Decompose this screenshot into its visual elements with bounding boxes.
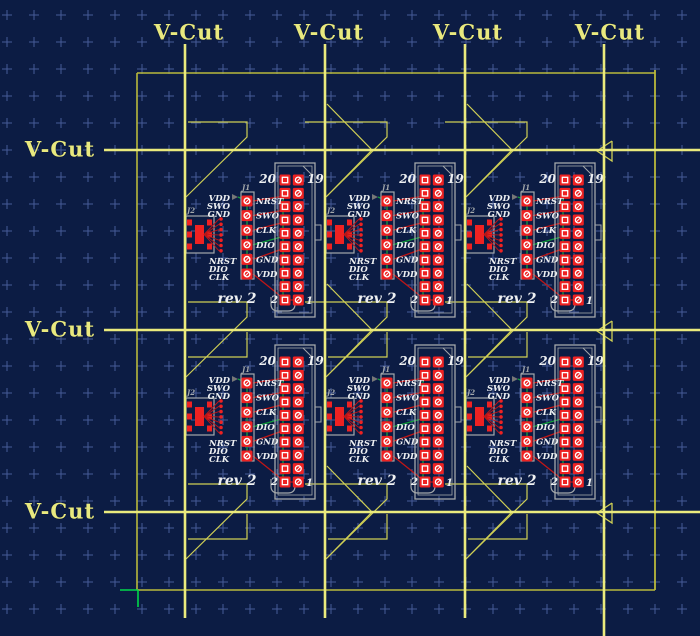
connector-outline <box>415 345 455 499</box>
pin-number-1: 1 <box>306 296 313 307</box>
through-hole-pad[interactable] <box>420 254 431 265</box>
pin-number-2: 2 <box>550 477 558 488</box>
net-label: GND <box>348 210 371 220</box>
pin-number-20: 20 <box>258 354 276 368</box>
via[interactable] <box>359 249 363 253</box>
via[interactable] <box>499 420 503 424</box>
smd-pad[interactable] <box>207 220 212 226</box>
pin-name-label: CLK <box>256 408 277 418</box>
via[interactable] <box>499 431 503 435</box>
through-hole-pad[interactable] <box>280 294 291 305</box>
through-hole-pad[interactable] <box>560 241 571 252</box>
pin-number-19: 19 <box>447 172 464 186</box>
vcut-label-top-2: V-Cut <box>294 20 364 45</box>
pin-name-label: VDD <box>396 452 418 462</box>
via[interactable] <box>219 249 223 253</box>
copper-pour <box>195 407 204 426</box>
copper-pour <box>475 407 484 426</box>
net-label: CLK <box>209 455 230 465</box>
smd-pad[interactable] <box>327 232 332 238</box>
smd-pad[interactable] <box>487 244 492 250</box>
connector-key-notch <box>595 225 601 240</box>
net-arrow-icon <box>232 376 238 382</box>
vcut-label-left-3: V-Cut <box>25 499 95 524</box>
smd-pad[interactable] <box>347 244 352 250</box>
pin-name-label: VDD <box>396 270 418 280</box>
pin-number-19: 19 <box>307 354 324 368</box>
through-hole-pad[interactable] <box>560 214 571 225</box>
through-hole-pad[interactable] <box>560 396 571 407</box>
pin-number-20: 20 <box>538 172 556 186</box>
vcut-label-top-1: V-Cut <box>154 20 224 45</box>
via[interactable] <box>499 238 503 242</box>
pin-number-19: 19 <box>587 354 604 368</box>
via[interactable] <box>359 233 363 237</box>
via[interactable] <box>359 405 363 409</box>
j2-refdes: J2 <box>185 206 195 215</box>
pin-number-2: 2 <box>270 295 278 306</box>
rev-label: rev 2 <box>357 473 396 489</box>
pin-name-label: VDD <box>256 270 278 280</box>
pin-name-label: SWO <box>536 212 560 222</box>
pin-number-2: 2 <box>410 477 418 488</box>
vcut-label-top-3: V-Cut <box>433 20 503 45</box>
smd-pad[interactable] <box>347 426 352 432</box>
through-hole-pad[interactable] <box>280 214 291 225</box>
via[interactable] <box>499 249 503 253</box>
rev-label: rev 2 <box>217 291 256 307</box>
net-label: CLK <box>349 273 370 283</box>
through-hole-pad[interactable] <box>280 254 291 265</box>
vcut-label-left-2: V-Cut <box>25 317 95 342</box>
smd-pad[interactable] <box>207 426 212 432</box>
through-hole-pad[interactable] <box>420 410 431 421</box>
smd-pad[interactable] <box>327 414 332 420</box>
through-hole-pad[interactable] <box>280 268 291 279</box>
smd-pad[interactable] <box>187 232 192 238</box>
pin-number-1: 1 <box>586 478 593 489</box>
via[interactable] <box>499 244 503 248</box>
pin-name-label: NRST <box>535 379 564 389</box>
pin-name-label: SWO <box>396 394 420 404</box>
net-label: CLK <box>489 273 510 283</box>
through-hole-pad[interactable] <box>420 463 431 474</box>
net-label: CLK <box>349 455 370 465</box>
through-hole-pad[interactable] <box>560 410 571 421</box>
via[interactable] <box>219 405 223 409</box>
net-label: GND <box>488 210 511 220</box>
pin-number-2: 2 <box>550 295 558 306</box>
pin-name-label: CLK <box>396 226 417 236</box>
smd-pad[interactable] <box>187 426 192 432</box>
copper-pour <box>335 225 344 244</box>
through-hole-pad[interactable] <box>420 241 431 252</box>
connector-key-notch <box>455 407 461 422</box>
pin-number-1: 1 <box>586 296 593 307</box>
through-hole-pad[interactable] <box>280 476 291 487</box>
via[interactable] <box>359 426 363 430</box>
smd-pad[interactable] <box>207 402 212 408</box>
pcb-module[interactable]: 201921rev 2J1J2NRSTSWOCLKDIOGNDVDDVDDSWO… <box>465 163 604 317</box>
via[interactable] <box>219 223 223 227</box>
pin-name-label: GND <box>536 255 559 265</box>
through-hole-pad[interactable] <box>560 423 571 434</box>
pin-name-label: NRST <box>535 197 564 207</box>
j1-refdes: J1 <box>240 183 250 192</box>
j2-refdes: J2 <box>185 388 195 397</box>
through-hole-pad[interactable] <box>560 436 571 447</box>
via[interactable] <box>219 244 223 248</box>
via[interactable] <box>499 415 503 419</box>
smd-pad[interactable] <box>327 244 332 250</box>
pcb-module[interactable]: 201921rev 2J1J2NRSTSWOCLKDIOGNDVDDVDDSWO… <box>185 163 324 317</box>
pin-name-label: SWO <box>396 212 420 222</box>
j1-refdes: J1 <box>240 365 250 374</box>
j2-refdes: J2 <box>465 206 475 215</box>
through-hole-pad[interactable] <box>560 254 571 265</box>
pin-name-label: VDD <box>256 452 278 462</box>
via[interactable] <box>359 228 363 232</box>
via[interactable] <box>359 223 363 227</box>
through-hole-pad[interactable] <box>280 423 291 434</box>
net-arrow-icon <box>512 376 518 382</box>
via[interactable] <box>219 238 223 242</box>
through-hole-pad[interactable] <box>420 214 431 225</box>
via[interactable] <box>219 233 223 237</box>
net-arrow-icon <box>512 194 518 200</box>
smd-pad[interactable] <box>207 244 212 250</box>
pcb-canvas[interactable]: 201921rev 2J1J2NRSTSWOCLKDIOGNDVDDVDDSWO… <box>0 0 700 636</box>
pcb-module[interactable]: 201921rev 2J1J2NRSTSWOCLKDIOGNDVDDVDDSWO… <box>185 345 324 499</box>
pcb-module[interactable]: 201921rev 2J1J2NRSTSWOCLKDIOGNDVDDVDDSWO… <box>325 345 464 499</box>
pin-number-1: 1 <box>306 478 313 489</box>
pin-name-label: SWO <box>256 394 280 404</box>
rev-label: rev 2 <box>497 473 536 489</box>
pin-name-label: GND <box>396 437 419 447</box>
via[interactable] <box>219 415 223 419</box>
pin-name-label: CLK <box>536 226 557 236</box>
via[interactable] <box>219 410 223 414</box>
via[interactable] <box>359 238 363 242</box>
through-hole-pad[interactable] <box>280 463 291 474</box>
via[interactable] <box>359 415 363 419</box>
j2-refdes: J2 <box>325 206 335 215</box>
connector-outline <box>555 345 595 499</box>
through-hole-pad[interactable] <box>420 228 431 239</box>
board-edge-notch[interactable] <box>188 332 247 357</box>
through-hole-pad[interactable] <box>280 175 291 186</box>
via[interactable] <box>499 223 503 227</box>
pin-name-label: GND <box>256 255 279 265</box>
rev-label: rev 2 <box>497 291 536 307</box>
through-hole-pad[interactable] <box>280 450 291 461</box>
pin-name-label: GND <box>536 437 559 447</box>
pin-name-label: DIO <box>535 241 555 251</box>
via[interactable] <box>359 420 363 424</box>
net-arrow-icon <box>372 376 378 382</box>
rev-label: rev 2 <box>217 473 256 489</box>
smd-pad[interactable] <box>487 426 492 432</box>
via[interactable] <box>219 228 223 232</box>
pin-name-label: NRST <box>395 197 424 207</box>
via[interactable] <box>359 431 363 435</box>
smd-pad[interactable] <box>327 426 332 432</box>
origin-marker <box>120 590 138 607</box>
pin-number-1: 1 <box>446 296 453 307</box>
via[interactable] <box>499 426 503 430</box>
vcut-label-left-1: V-Cut <box>25 137 95 162</box>
connector-outline <box>275 345 315 499</box>
pin-name-label: CLK <box>536 408 557 418</box>
pin-number-19: 19 <box>447 354 464 368</box>
through-hole-pad[interactable] <box>280 228 291 239</box>
through-hole-pad[interactable] <box>420 268 431 279</box>
net-label: CLK <box>489 455 510 465</box>
smd-pad[interactable] <box>187 414 192 420</box>
through-hole-pad[interactable] <box>420 476 431 487</box>
board-edge-flag[interactable] <box>186 484 247 559</box>
connector-outline <box>275 163 315 317</box>
through-hole-pad[interactable] <box>420 294 431 305</box>
smd-pad[interactable] <box>467 426 472 432</box>
smd-pad[interactable] <box>347 220 352 226</box>
pin-name-label: SWO <box>536 394 560 404</box>
net-label: CLK <box>209 273 230 283</box>
via[interactable] <box>499 410 503 414</box>
smd-pad[interactable] <box>187 244 192 250</box>
via[interactable] <box>219 426 223 430</box>
pin-number-2: 2 <box>410 295 418 306</box>
smd-pad[interactable] <box>187 220 192 226</box>
pin-name-label: DIO <box>255 423 275 433</box>
rev-label: rev 2 <box>357 291 396 307</box>
board-edge-flag[interactable] <box>186 122 247 197</box>
through-hole-pad[interactable] <box>420 396 431 407</box>
board-edge-notch[interactable] <box>188 514 247 539</box>
pin-number-19: 19 <box>587 172 604 186</box>
via[interactable] <box>219 420 223 424</box>
pin-name-label: GND <box>396 255 419 265</box>
via[interactable] <box>359 410 363 414</box>
pin-name-label: VDD <box>536 452 558 462</box>
through-hole-pad[interactable] <box>280 396 291 407</box>
j2-refdes: J2 <box>465 388 475 397</box>
smd-pad[interactable] <box>467 220 472 226</box>
copper-pour <box>475 225 484 244</box>
through-hole-pad[interactable] <box>560 228 571 239</box>
through-hole-pad[interactable] <box>420 436 431 447</box>
pin-name-label: CLK <box>396 408 417 418</box>
j1-refdes: J1 <box>380 183 390 192</box>
through-hole-pad[interactable] <box>420 423 431 434</box>
through-hole-pad[interactable] <box>420 357 431 368</box>
smd-pad[interactable] <box>487 220 492 226</box>
net-arrow-icon <box>372 194 378 200</box>
through-hole-pad[interactable] <box>420 175 431 186</box>
through-hole-pad[interactable] <box>560 281 571 292</box>
via[interactable] <box>359 244 363 248</box>
through-hole-pad[interactable] <box>560 294 571 305</box>
through-hole-pad[interactable] <box>420 450 431 461</box>
through-hole-pad[interactable] <box>280 436 291 447</box>
connector-key-notch <box>315 407 321 422</box>
through-hole-pad[interactable] <box>280 410 291 421</box>
pin-name-label: NRST <box>395 379 424 389</box>
j2-refdes: J2 <box>325 388 335 397</box>
connector-key-notch <box>315 225 321 240</box>
smd-pad[interactable] <box>467 232 472 238</box>
pcb-editor-viewport: 201921rev 2J1J2NRSTSWOCLKDIOGNDVDDVDDSWO… <box>0 0 700 636</box>
pcb-module[interactable]: 201921rev 2J1J2NRSTSWOCLKDIOGNDVDDVDDSWO… <box>465 345 604 499</box>
copper-pour <box>335 407 344 426</box>
pin-name-label: DIO <box>395 423 415 433</box>
pin-name-label: DIO <box>395 241 415 251</box>
pin-number-20: 20 <box>398 354 416 368</box>
j1-refdes: J1 <box>520 365 530 374</box>
smd-pad[interactable] <box>467 402 472 408</box>
through-hole-pad[interactable] <box>560 175 571 186</box>
via[interactable] <box>219 431 223 435</box>
pin-number-20: 20 <box>398 172 416 186</box>
pin-name-label: GND <box>256 437 279 447</box>
pin-name-label: CLK <box>256 226 277 236</box>
net-label: GND <box>208 392 231 402</box>
board-edge-flag[interactable] <box>305 484 387 559</box>
pin-number-20: 20 <box>258 172 276 186</box>
through-hole-pad[interactable] <box>280 241 291 252</box>
via[interactable] <box>499 405 503 409</box>
board-edge-flag[interactable] <box>445 484 527 559</box>
through-hole-pad[interactable] <box>560 268 571 279</box>
through-hole-pad[interactable] <box>560 450 571 461</box>
through-hole-pad[interactable] <box>280 281 291 292</box>
smd-pad[interactable] <box>467 414 472 420</box>
pin-name-label: VDD <box>536 270 558 280</box>
net-arrow-icon <box>232 194 238 200</box>
through-hole-pad[interactable] <box>420 281 431 292</box>
via[interactable] <box>499 233 503 237</box>
pin-number-20: 20 <box>538 354 556 368</box>
copper-pour <box>195 225 204 244</box>
pin-name-label: DIO <box>535 423 555 433</box>
smd-pad[interactable] <box>187 402 192 408</box>
pin-number-2: 2 <box>270 477 278 488</box>
pin-name-label: SWO <box>256 212 280 222</box>
smd-pad[interactable] <box>327 220 332 226</box>
net-label: GND <box>488 392 511 402</box>
pcb-module[interactable]: 201921rev 2J1J2NRSTSWOCLKDIOGNDVDDVDDSWO… <box>325 163 464 317</box>
pin-name-label: NRST <box>255 197 284 207</box>
pin-name-label: NRST <box>255 379 284 389</box>
pin-number-19: 19 <box>307 172 324 186</box>
smd-pad[interactable] <box>327 402 332 408</box>
smd-pad[interactable] <box>467 244 472 250</box>
vcut-label-top-4: V-Cut <box>575 20 645 45</box>
smd-pad[interactable] <box>347 402 352 408</box>
grid-crosses <box>2 10 687 614</box>
through-hole-pad[interactable] <box>560 357 571 368</box>
via[interactable] <box>499 228 503 232</box>
pin-name-label: DIO <box>255 241 275 251</box>
j1-refdes: J1 <box>520 183 530 192</box>
smd-pad[interactable] <box>487 402 492 408</box>
connector-outline <box>415 163 455 317</box>
through-hole-pad[interactable] <box>560 463 571 474</box>
j1-refdes: J1 <box>380 365 390 374</box>
net-label: GND <box>208 210 231 220</box>
connector-key-notch <box>455 225 461 240</box>
connector-outline <box>555 163 595 317</box>
through-hole-pad[interactable] <box>280 357 291 368</box>
net-label: GND <box>348 392 371 402</box>
pin-number-1: 1 <box>446 478 453 489</box>
through-hole-pad[interactable] <box>560 476 571 487</box>
